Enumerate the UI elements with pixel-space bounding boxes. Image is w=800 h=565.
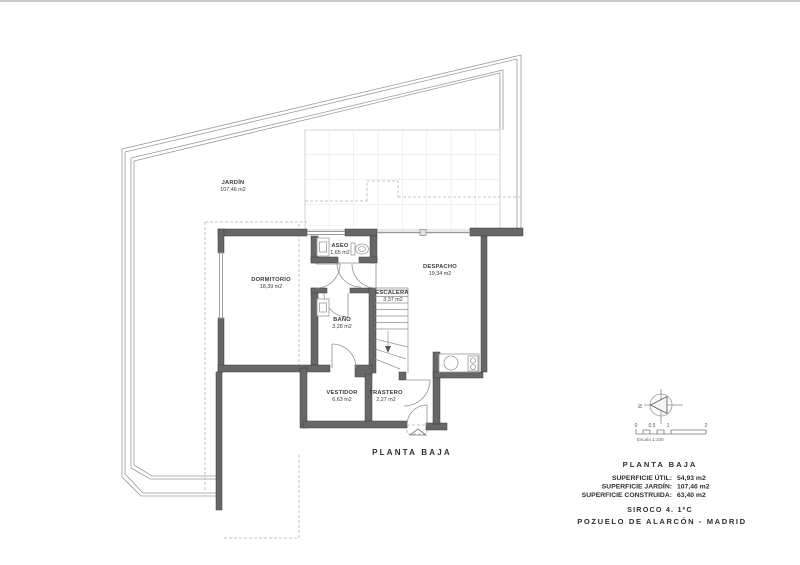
floor-plan-page: JARDÍN 107,46 m2 DORMITORIO 18,39 m2 ASE… [0,0,800,565]
floor-plan-canvas: JARDÍN 107,46 m2 DORMITORIO 18,39 m2 ASE… [0,0,800,565]
wall-entry-right [433,378,440,424]
window-dormitorio [218,253,224,318]
door-vestidor [332,344,356,368]
door-trastero [404,380,430,406]
scale-caption: Escala 1:100 [637,437,664,442]
fixtures [317,238,479,372]
door-aseo [337,263,361,287]
room-label-dormitorio: DORMITORIO [251,277,291,283]
garden-boundary [122,55,521,496]
room-area-trastero: 2,27 m2 [376,397,395,403]
room-label-aseo: ASEO [331,243,349,249]
room-label-vestidor: VESTIDOR [326,390,358,396]
north-arrow-icon: N [638,389,683,424]
scale-tick-0: 0 [635,423,638,429]
info-value-construida: 63,40 m2 [677,492,706,499]
wall-stairs-left [369,288,376,373]
terrace-tiles [305,130,500,230]
room-label-escalera: ESCALERA [375,290,409,296]
kitchen-counter [439,354,479,372]
glazing-mullion [420,230,426,236]
wall-left-lower [218,318,224,372]
door-entrance [407,405,427,425]
wall-aseo-bottom-right [359,257,377,263]
wall-left-upper [218,229,224,253]
room-area-aseo: 1,65 m2 [330,250,349,256]
info-title: PLANTA BAJA [623,460,698,469]
room-area-jardin: 107,46 m2 [220,187,245,193]
info-project: SIROCO 4. 1ºC [627,505,693,514]
room-area-dormitorio: 18,39 m2 [260,284,282,290]
room-label-despacho: DESPACHO [423,264,457,270]
wall-vestidor-left [300,368,307,428]
room-area-vestidor: 6,63 m2 [332,397,351,403]
room-area-despacho: 19,34 m2 [429,271,451,277]
wall-bottom [303,421,407,428]
aseo-sink [317,238,329,256]
scale-tick-1: 1 [667,423,670,429]
scale-bar: 0 0,5 1 2 Escala 1:100 [635,423,708,442]
wall-dormitorio-bottom [218,365,330,372]
info-block: PLANTA BAJA SUPERFICIE ÚTIL: 54,93 m2 SU… [577,460,746,526]
scale-tick-2: 2 [705,423,708,429]
room-label-trastero: TRASTERO [369,390,403,396]
door-dormitorio [316,264,340,288]
room-label-jardin: JARDÍN [222,178,245,186]
info-label-jardin: SUPERFICIE JARDÍN: [602,482,672,491]
door-despacho [352,264,376,288]
aseo-toilet [351,243,369,255]
window-terrace-door [307,232,345,235]
wall-kitchen-bottom [433,372,483,378]
wall-trastero-right [399,372,406,380]
room-label-bano: BAÑO [333,316,351,323]
north-label: N [638,404,644,408]
info-label-util: SUPERFICIE ÚTIL: [612,473,672,482]
plan-title: PLANTA BAJA [372,448,452,457]
bano-sink [317,299,329,316]
garden-fence-wall [216,372,222,510]
wall-vestidor-trastero [365,374,372,422]
info-label-construida: SUPERFICIE CONSTRUIDA: [582,492,672,499]
info-value-util: 54,93 m2 [677,475,706,482]
stairs-direction-arrow [385,346,391,353]
wall-top-c [470,228,523,236]
wall-aseo-bottom-left [311,257,338,263]
info-value-jardin: 107,46 m2 [677,484,710,491]
page-top-edge [0,0,800,2]
kitchen-sink [444,356,458,370]
wall-despacho-right [481,236,487,372]
wall-top-b [345,229,377,236]
wall-bano-top-left [311,288,327,293]
wall-top-a [218,229,307,236]
info-location: POZUELO DE ALARCÓN - MADRID [577,517,746,526]
room-area-bano: 3,28 m2 [332,324,351,330]
room-area-escalera: 3,37 m2 [383,297,402,303]
scale-tick-05: 0,5 [649,423,656,429]
